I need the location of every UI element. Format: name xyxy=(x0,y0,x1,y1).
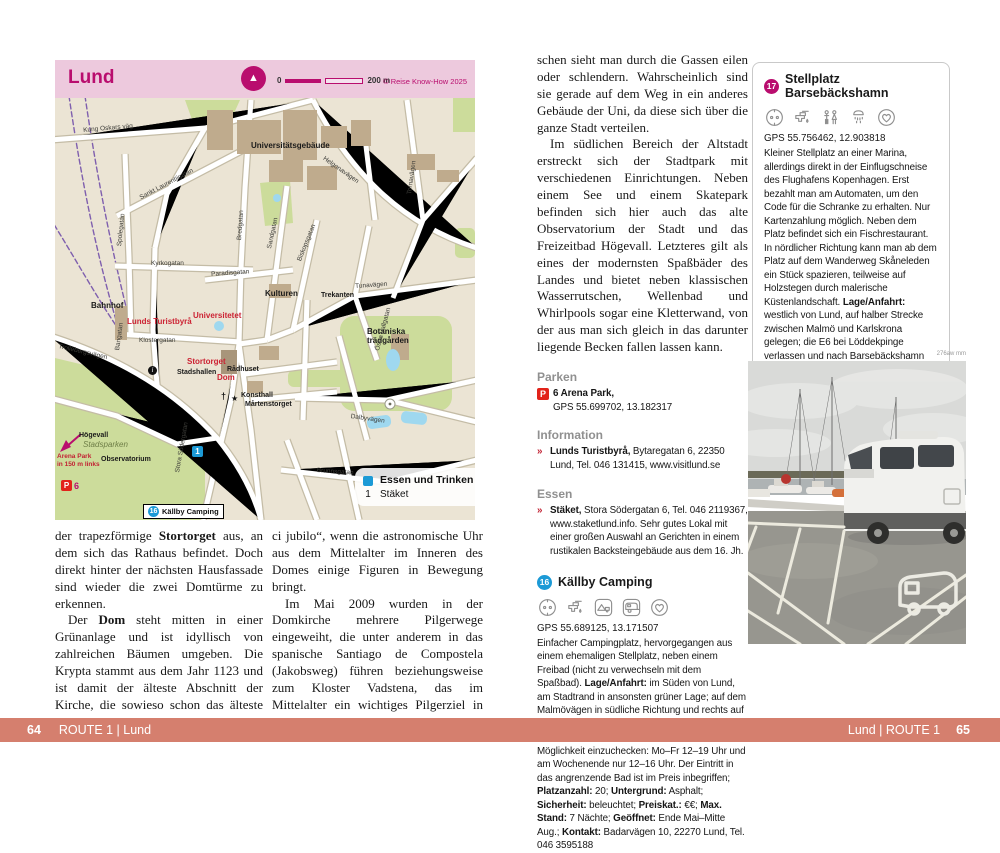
stellplatz-heading: 17 Stellplatz Barsebäckshamn xyxy=(764,72,938,100)
legend-title: Essen und Trinken xyxy=(380,474,473,486)
map-marker-staket: 1 xyxy=(192,446,203,457)
parking-icon: P xyxy=(537,388,549,400)
information-entry: » Lunds Turistbyrå, Bytaregatan 6, 22350… xyxy=(537,445,748,472)
shower-icon xyxy=(848,107,869,128)
scale-segment xyxy=(285,79,321,83)
parken-gps: GPS 55.699702, 13.182317 xyxy=(537,401,748,415)
favorite-heart-icon xyxy=(876,107,897,128)
campsite-number-badge: 16 xyxy=(148,506,159,517)
legend-entry-label: Stäket xyxy=(380,489,408,500)
stellplatz-amenity-icons xyxy=(764,107,938,128)
map-drawing xyxy=(55,98,475,520)
paragraph: Der Dom steht mitten in einer Grünanlage… xyxy=(55,612,263,712)
body-column-3: schen sieht man durch die Gassen eilen o… xyxy=(537,52,748,714)
page-number-left: 64 xyxy=(27,723,41,737)
church-icon: † xyxy=(221,391,226,401)
wc-icon xyxy=(820,107,841,128)
campsite-title: Källby Camping xyxy=(558,575,652,589)
caravan-icon xyxy=(621,597,642,618)
body-column-2: ci jubilo“, wenn die astronomische Uhr a… xyxy=(272,528,483,712)
stellplatz-number-badge: 17 xyxy=(764,79,779,94)
water-tap-icon xyxy=(792,107,813,128)
photo-credit: 276aw mm xyxy=(748,351,966,357)
footer-route-label-right: Lund | ROUTE 1 xyxy=(848,723,940,737)
paragraph: Im Mai 2009 wurden in der Domkirche mehr… xyxy=(272,596,483,712)
body-column-1: der trapezförmige Stortorget aus, an dem… xyxy=(55,528,263,712)
legend-color-swatch xyxy=(363,476,373,486)
compass-icon: ▲ xyxy=(241,66,266,91)
section-heading-parken: Parken xyxy=(537,370,748,384)
star-icon: ★ xyxy=(231,394,238,403)
favorite-heart-icon xyxy=(649,597,670,618)
parken-entry: P 6 Arena Park, GPS 55.699702, 13.182317 xyxy=(537,387,748,414)
page-footer: 64 ROUTE 1 | Lund Lund | ROUTE 1 65 xyxy=(0,718,1000,742)
paragraph: schen sieht man durch die Gassen eilen o… xyxy=(537,52,748,136)
lund-map: Lund ▲ 0 200 m © Reise Know-How 2025 xyxy=(55,60,475,520)
map-callout-kallby: 16 Källby Camping xyxy=(143,504,224,519)
campsite-callout-label: Källby Camping xyxy=(162,507,219,516)
essen-text: Stäket, Stora Södergatan 6, Tel. 046 211… xyxy=(550,505,748,557)
chevron-bullet-icon: » xyxy=(537,504,542,518)
page-number-right: 65 xyxy=(956,723,970,737)
paragraph: der trapezförmige Stortorget aus, an dem… xyxy=(55,528,263,612)
red-umbrella xyxy=(781,474,791,484)
marina-photo-drawing xyxy=(748,361,966,644)
footer-route-label-left: ROUTE 1 | Lund xyxy=(59,723,151,737)
paragraph: Im südlichen Bereich der Altstadt erstre… xyxy=(537,136,748,356)
marina-photo xyxy=(748,361,966,644)
map-header: Lund ▲ 0 200 m © Reise Know-How 2025 xyxy=(55,60,475,98)
essen-entry: » Stäket, Stora Södergatan 6, Tel. 046 2… xyxy=(537,504,748,559)
kallby-description: Einfacher Campingplatz, hervorgegangen a… xyxy=(537,637,748,853)
paragraph: ci jubilo“, wenn die astronomische Uhr a… xyxy=(272,528,483,596)
tourist-info-icon: i xyxy=(148,366,157,375)
legend-entry-number: 1 xyxy=(363,489,373,500)
kallby-amenity-icons xyxy=(537,597,748,618)
map-copyright: © Reise Know-How 2025 xyxy=(383,77,467,86)
map-title: Lund xyxy=(68,67,114,89)
camper-van xyxy=(844,431,966,545)
scale-segment xyxy=(325,78,363,84)
stellplatz-gps: GPS 55.756462, 12.903818 xyxy=(764,133,938,144)
scale-start: 0 xyxy=(277,76,281,85)
information-text: Lunds Turistbyrå, Bytaregatan 6, 22350 L… xyxy=(550,446,725,471)
parking-name: 6 Arena Park, xyxy=(553,387,614,401)
power-icon xyxy=(764,107,785,128)
parking-number: 6 xyxy=(74,481,79,491)
kallby-heading: 16 Källby Camping xyxy=(537,575,748,590)
campsite-number-badge: 16 xyxy=(537,575,552,590)
parking-icon: P xyxy=(61,480,72,491)
map-canvas: 1 i † ★ P 6 16 Källby Camping Essen und … xyxy=(55,98,475,520)
map-legend: Essen und Trinken 1 Stäket xyxy=(355,468,475,506)
stellplatz-title: Stellplatz Barsebäckshamn xyxy=(785,72,938,100)
chevron-bullet-icon: » xyxy=(537,445,542,459)
power-icon xyxy=(537,597,558,618)
kallby-gps: GPS 55.689125, 13.171507 xyxy=(537,623,748,634)
section-heading-information: Information xyxy=(537,428,748,442)
tent-caravan-icon xyxy=(593,597,614,618)
section-heading-essen: Essen xyxy=(537,487,748,501)
map-parking-p6: P 6 xyxy=(61,480,79,491)
water-tap-icon xyxy=(565,597,586,618)
map-scalebar: 0 200 m xyxy=(277,76,390,85)
